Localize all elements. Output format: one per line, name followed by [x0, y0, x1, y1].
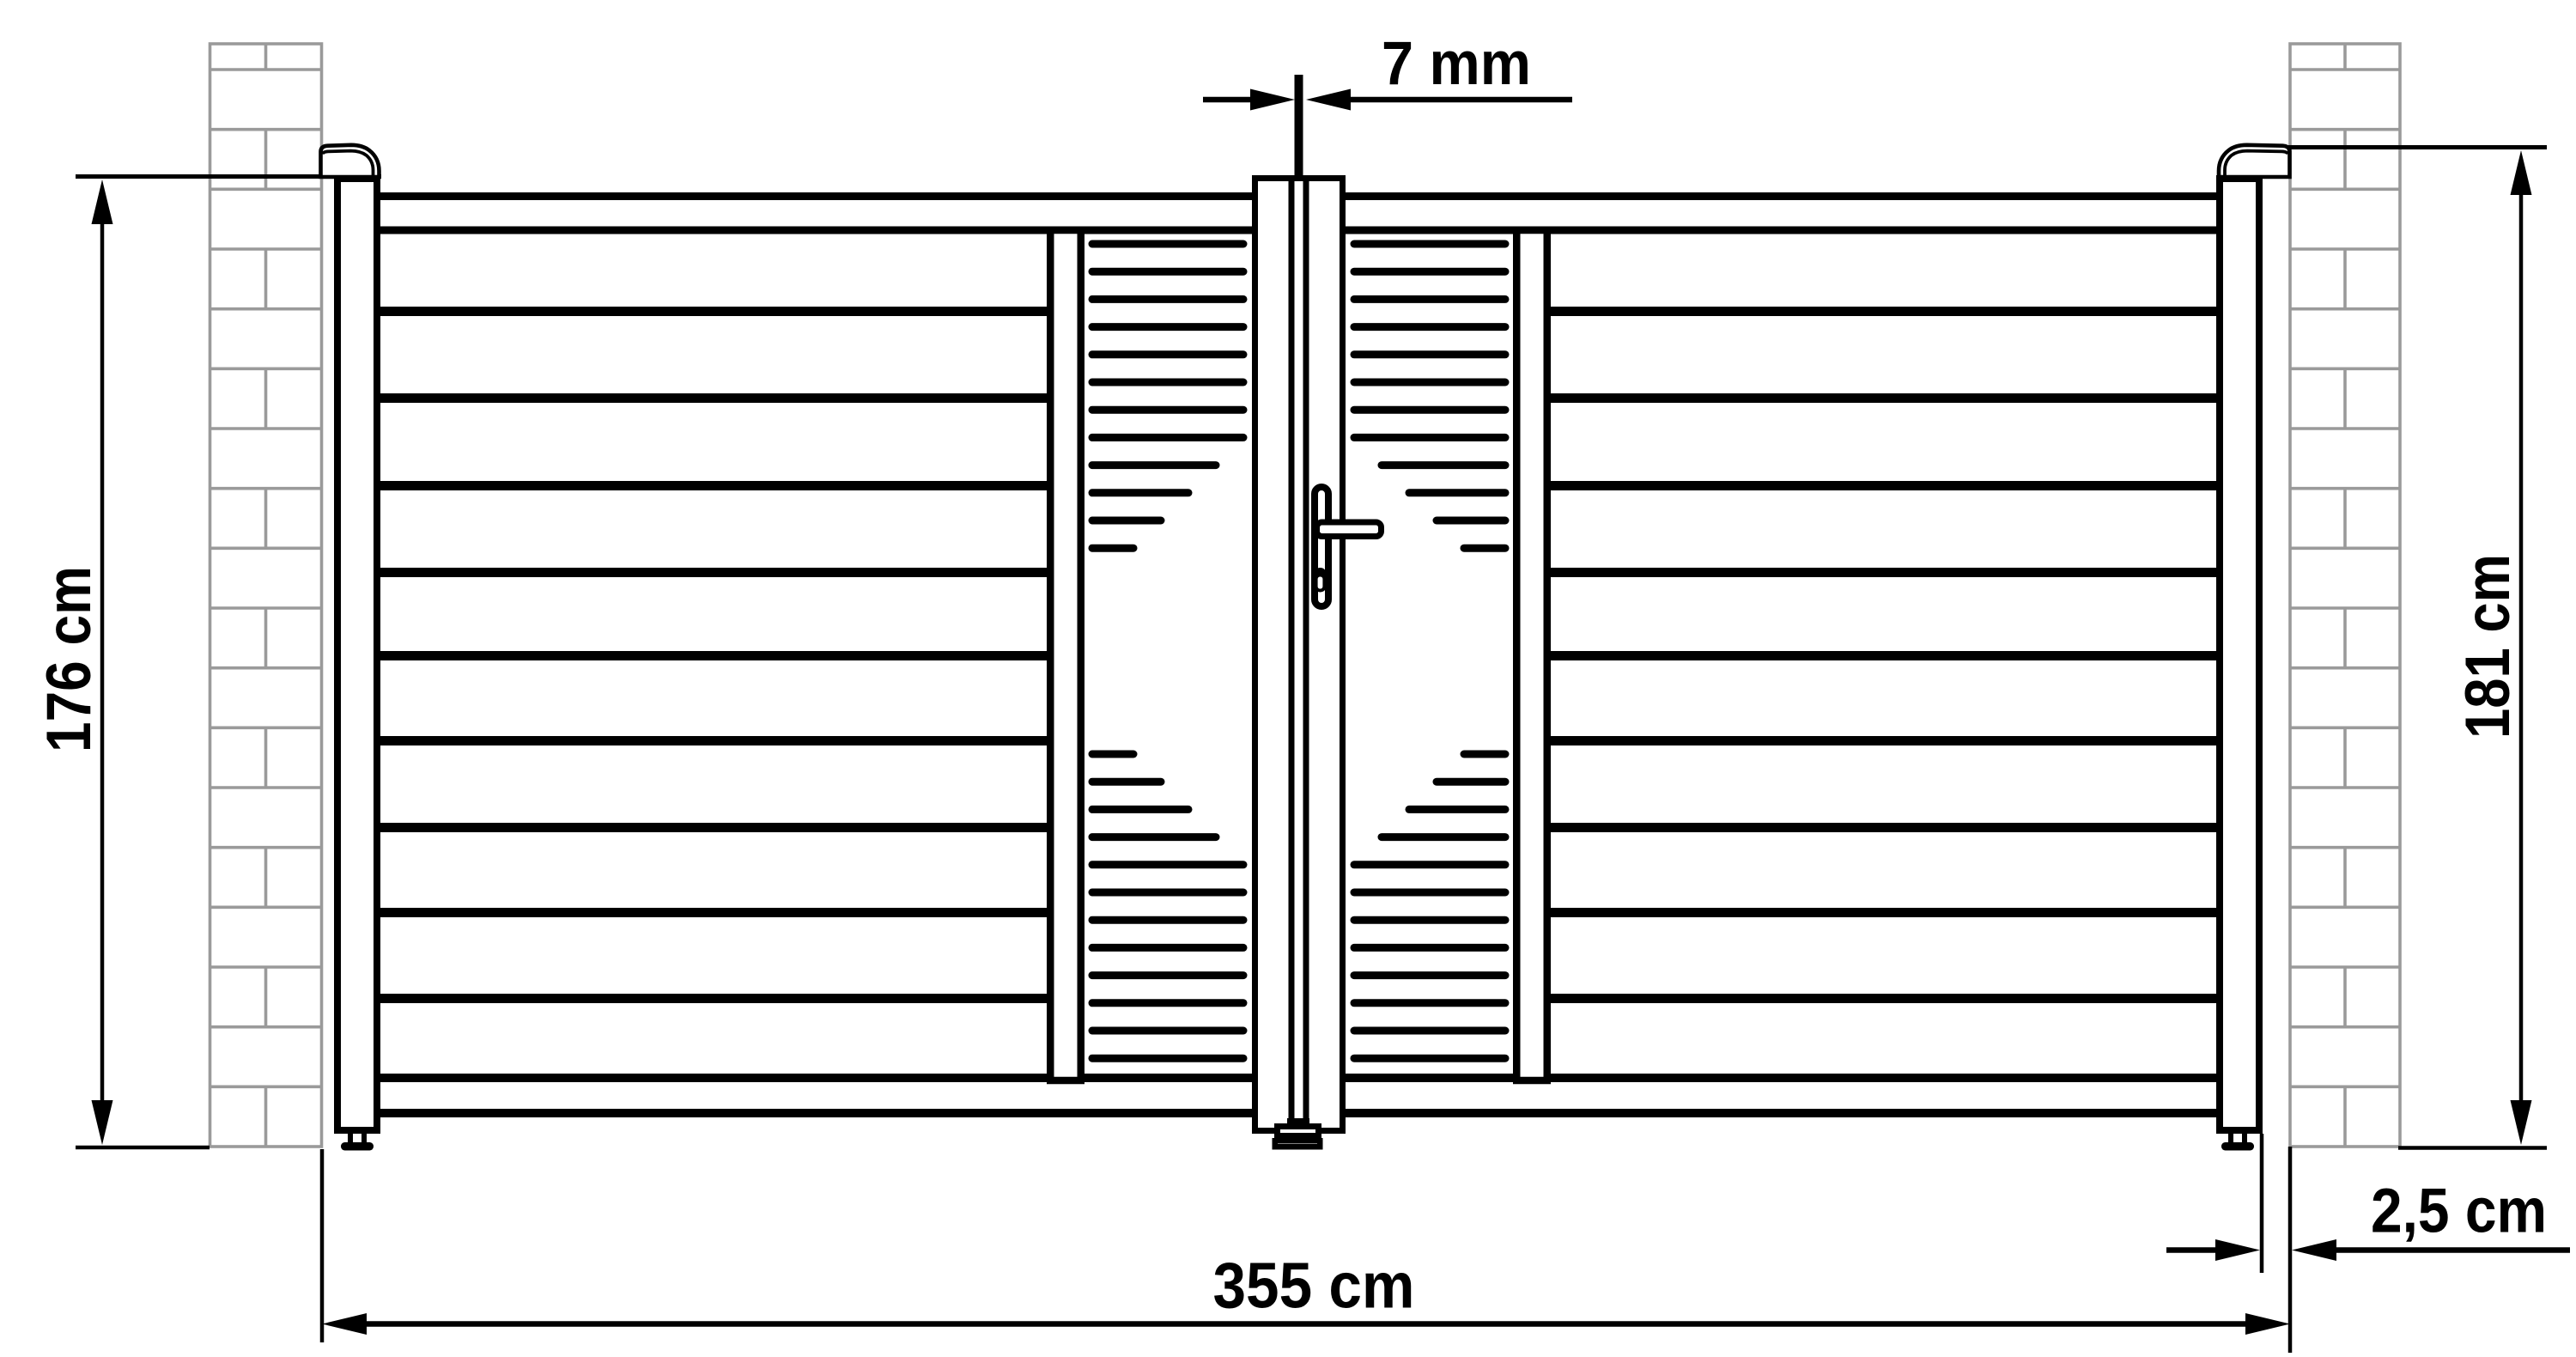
svg-text:176 cm: 176 cm [34, 566, 104, 752]
svg-text:355 cm: 355 cm [1213, 1250, 1415, 1322]
svg-text:2,5 cm: 2,5 cm [2371, 1177, 2547, 1246]
svg-text:7 mm: 7 mm [1382, 30, 1531, 98]
svg-text:181 cm: 181 cm [2453, 554, 2523, 739]
